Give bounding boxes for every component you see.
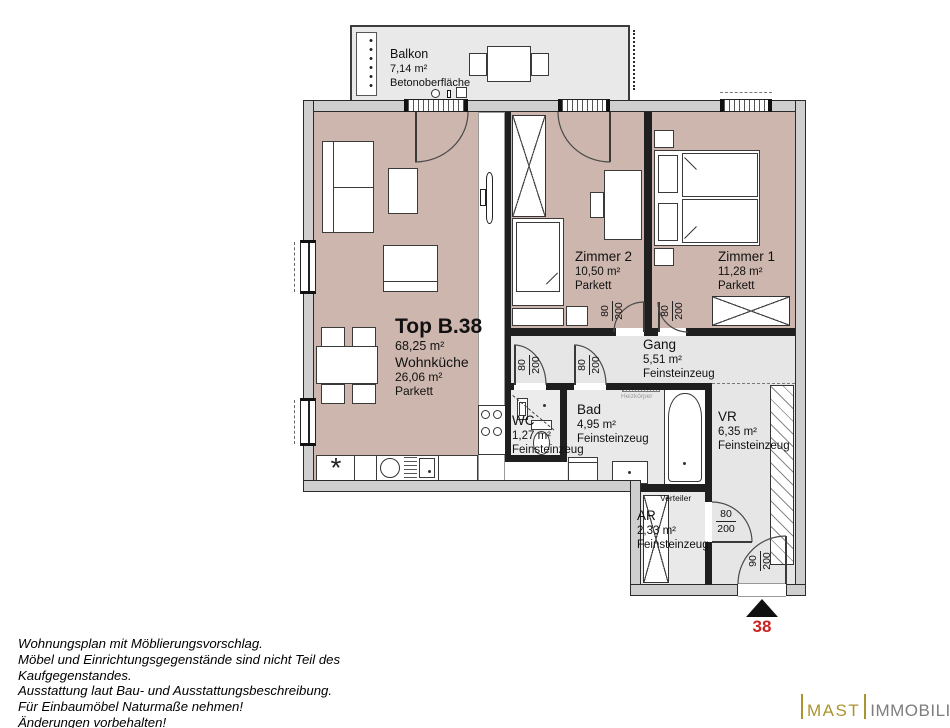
door-size-ar: 80200	[716, 508, 736, 535]
wall-zimmer1-zimmer2	[644, 112, 652, 336]
wall-ar-east-a	[705, 492, 712, 502]
nightstand-zimmer2	[566, 306, 588, 326]
sink-drainer-icon	[404, 457, 417, 479]
unit-kitchen-area: 26,06 m²	[395, 370, 482, 384]
door-height: 200	[674, 302, 685, 320]
room-floor: Parkett	[718, 279, 775, 293]
disclaimer-line: Wohnungsplan mit Möblierungsvorschlag.	[18, 636, 340, 652]
balcony-dotted-boundary	[633, 30, 635, 90]
wall-rooms-south-c	[686, 328, 795, 336]
gang-vr-boundary-dashed	[712, 383, 795, 384]
balcony-door-wohnkueche	[404, 99, 468, 112]
railing-posts	[367, 36, 375, 93]
window-left-1	[300, 240, 316, 294]
zimmer2-label: Zimmer 2 10,50 m² Parkett	[575, 249, 632, 293]
door-width: 90	[748, 555, 759, 567]
radiator-label: Heizkörper	[621, 393, 652, 400]
door-width: 80	[720, 508, 732, 520]
logo-brand: MAST	[807, 702, 860, 719]
dining-table	[316, 346, 378, 384]
door-size-entrance: 90200	[745, 546, 775, 576]
door-width: 80	[577, 359, 588, 371]
wall-strip-east	[505, 112, 511, 462]
disclaimer-line: Ausstattung laut Bau- und Ausstattungsbe…	[18, 683, 340, 699]
room-area: 4,95 m²	[577, 418, 649, 432]
bath-sink-drain	[628, 471, 631, 474]
balcony-name: Balkon	[390, 46, 470, 62]
room-name: AR	[637, 508, 709, 524]
bed-mattress	[682, 153, 758, 197]
room-name: WC	[512, 413, 584, 429]
room-name: Gang	[643, 337, 715, 353]
room-area: 5,51 m²	[643, 353, 715, 367]
wall-bottom-right-b	[786, 584, 806, 596]
balcony-table	[487, 46, 531, 82]
counter-divider	[376, 456, 377, 480]
kitchen-sink-basin	[380, 458, 400, 478]
side-table	[388, 168, 418, 214]
zimmer1-label: Zimmer 1 11,28 m² Parkett	[718, 249, 775, 293]
window-glass-line	[308, 243, 310, 291]
disclaimer-line: Kaufgegenstandes.	[18, 668, 340, 684]
wall-rooms-south-a	[511, 328, 616, 336]
room-area: 6,35 m²	[718, 425, 790, 439]
fridge-snowflake-icon: *	[322, 453, 350, 483]
bed-pillow	[658, 155, 678, 193]
logo-bar-icon	[801, 694, 803, 719]
balcony-planter-icon	[431, 89, 440, 98]
room-floor: Feinsteinzeug	[637, 538, 709, 552]
wall-gang-south-c	[606, 383, 712, 390]
sink-drain-dot	[428, 470, 431, 473]
ar-label: AR 2,33 m² Feinsteinzeug	[637, 508, 709, 552]
wall-bad-vr	[705, 390, 712, 484]
room-name: Bad	[577, 402, 649, 418]
tv-icon	[486, 172, 493, 224]
window-left-1-dashed	[294, 242, 295, 292]
dining-chair	[352, 384, 376, 404]
door-size-wc: 80200	[514, 350, 544, 380]
room-area: 10,50 m²	[575, 265, 632, 279]
disclaimer-line: Änderungen vorbehalten!	[18, 715, 340, 728]
room-name: Zimmer 1	[718, 249, 775, 265]
counter-divider	[354, 456, 355, 480]
logo-suffix: IMMOBILIEN	[870, 702, 950, 719]
door-height: 200	[531, 356, 542, 374]
desk-chair-zimmer2	[590, 192, 604, 218]
vr-label: VR 6,35 m² Feinsteinzeug	[718, 409, 790, 453]
room-name: Zimmer 2	[575, 249, 632, 265]
room-name: VR	[718, 409, 790, 425]
room-area: 2,33 m²	[637, 524, 709, 538]
wall-gang-south-b	[546, 383, 574, 390]
door-width: 80	[600, 305, 611, 317]
balcony-label: Balkon 7,14 m² Betonoberfläche	[390, 46, 470, 90]
bed-zimmer2-mattress	[516, 222, 560, 292]
dining-chair	[321, 384, 345, 404]
wardrobe-zimmer1	[712, 296, 790, 326]
nightstand-zimmer1	[654, 130, 674, 148]
window-glass-line	[308, 401, 310, 443]
bed-pillow	[658, 203, 678, 241]
stove-burner	[493, 410, 502, 419]
washing-machine-line	[569, 462, 597, 463]
unit-kitchen-name: Wohnküche	[395, 354, 482, 370]
room-floor: Feinsteinzeug	[577, 432, 649, 446]
door-size-zimmer1: 80200	[657, 296, 687, 326]
nightstand-zimmer1	[654, 248, 674, 266]
unit-label: Top B.38 68,25 m² Wohnküche 26,06 m² Par…	[395, 315, 482, 398]
entrance-arrow-icon	[746, 599, 778, 617]
unit-total-area: 68,25 m²	[395, 339, 482, 354]
wall-bottom-left	[303, 480, 641, 492]
disclaimer-text: Wohnungsplan mit Möblierungsvorschlag. M…	[18, 636, 340, 728]
bed-mattress	[682, 199, 758, 243]
door-height: 200	[614, 302, 625, 320]
room-area: 1,27 m²	[512, 429, 584, 443]
unit-number: 38	[746, 617, 778, 637]
coffee-table-line	[384, 281, 437, 282]
balcony-area: 7,14 m²	[390, 62, 470, 76]
gang-label: Gang 5,51 m² Feinsteinzeug	[643, 337, 715, 381]
bed-zimmer2-bench	[512, 308, 564, 326]
entrance-opening	[738, 583, 786, 597]
wall-right	[795, 100, 806, 596]
window-zimmer1	[720, 99, 772, 112]
room-floor: Feinsteinzeug	[512, 443, 584, 457]
balcony-chair-right	[531, 53, 549, 76]
balcony-surface: Betonoberfläche	[390, 76, 470, 90]
door-arc-balcony-wohnkueche	[415, 112, 468, 162]
counter-divider	[438, 456, 439, 480]
stove-burner	[481, 427, 490, 436]
room-floor: Feinsteinzeug	[718, 439, 790, 453]
company-logo: MAST IMMOBILIEN	[801, 694, 950, 719]
sink-second-basin	[419, 458, 435, 478]
wardrobe-zimmer2	[512, 115, 546, 217]
door-width: 80	[517, 359, 528, 371]
balcony-chair-left	[469, 53, 487, 76]
window-left-2	[300, 398, 316, 446]
door-arc-balcony-zimmer2	[558, 112, 610, 162]
window-left-2-dashed	[294, 400, 295, 444]
dining-chair	[321, 327, 345, 347]
logo-bar-icon	[864, 694, 866, 719]
disclaimer-line: Möbel und Einrichtungsgegenstände sind n…	[18, 652, 340, 668]
stove-burner	[493, 427, 502, 436]
fraction-bar	[716, 521, 736, 522]
room-floor: Feinsteinzeug	[643, 367, 715, 381]
disclaimer-line: Für Einbaumöbel Naturmaße nehmen!	[18, 699, 340, 715]
door-size-zimmer2: 80200	[597, 296, 627, 326]
room-area: 11,28 m²	[718, 265, 775, 279]
stove-burner	[481, 410, 490, 419]
verteiler-label: Verteiler	[660, 493, 691, 503]
unit-id: Top B.38	[395, 315, 482, 339]
balcony-door-zimmer2	[558, 99, 610, 112]
bathtub-inner	[668, 393, 702, 482]
door-height: 200	[762, 552, 773, 570]
wall-rooms-south-b	[644, 328, 658, 336]
room-floor: Parkett	[575, 279, 632, 293]
door-height: 200	[591, 356, 602, 374]
door-width: 80	[660, 305, 671, 317]
desk-zimmer2	[604, 170, 642, 240]
wall-ar-north	[641, 484, 712, 492]
balcony-small-item	[447, 90, 451, 98]
bad-label: Bad 4,95 m² Feinsteinzeug	[577, 402, 649, 446]
bathtub-drain	[683, 462, 686, 465]
door-height: 200	[717, 523, 735, 535]
wc-marker-dot	[543, 404, 546, 407]
unit-kitchen-floor: Parkett	[395, 384, 482, 398]
floor-plan-canvas: Balkon 7,14 m² Betonoberfläche *	[0, 0, 950, 728]
door-size-bad: 80200	[574, 350, 604, 380]
coffee-table	[383, 245, 438, 292]
window-zimmer1-dashed	[720, 92, 772, 93]
wall-bottom-right-a	[630, 584, 738, 596]
sofa-cushion-line	[334, 187, 373, 188]
wc-label: WC 1,27 m² Feinsteinzeug	[512, 413, 584, 457]
dining-chair	[352, 327, 376, 347]
